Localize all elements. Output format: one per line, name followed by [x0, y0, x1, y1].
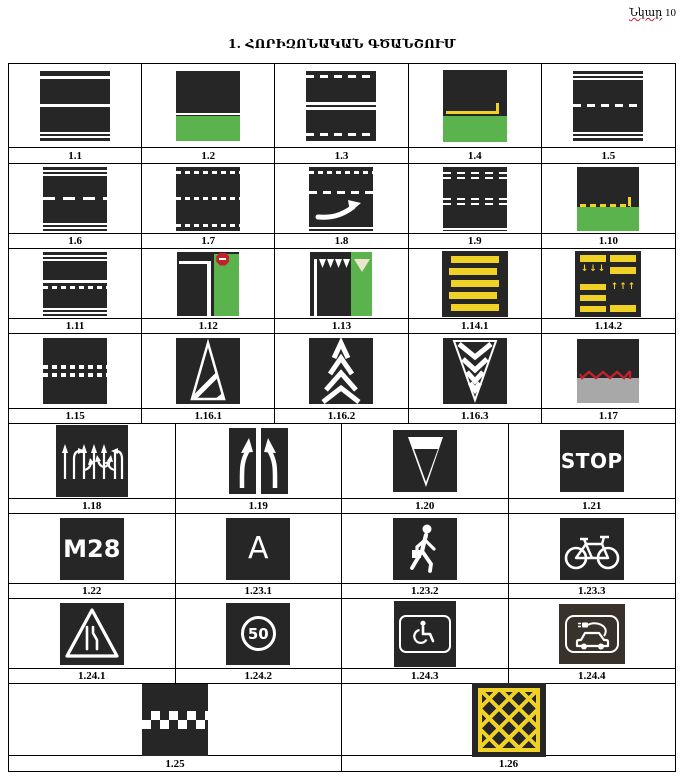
- route-number-text: M28: [63, 535, 120, 563]
- cell-1-5: [542, 64, 675, 148]
- marking-1-19-lane-end-arrows-graphic: [229, 428, 288, 494]
- marking-1-1-solid-line-graphic: [40, 71, 110, 141]
- cell-1-22: M28: [9, 514, 176, 584]
- zebra-up-arrows-icon: ↑↑↑: [610, 282, 636, 292]
- marking-1-25-speed-hump-graphic: [142, 684, 208, 756]
- road-narrows-sign-icon: [60, 603, 124, 665]
- wheelchair-icon: [412, 620, 438, 647]
- bus-lane-letter: A: [248, 531, 269, 566]
- give-way-triangle-icon: [354, 259, 370, 272]
- marking-1-16-2-chevron-merge-graphic: [309, 338, 373, 404]
- curve-left-arrow-icon: [261, 428, 288, 494]
- marking-1-13-give-way-teeth-graphic: [310, 252, 372, 316]
- cell-1-14-1: [409, 249, 542, 319]
- cell-1-16-1: [142, 334, 275, 409]
- lane-direction-arrows-icon: [59, 439, 125, 483]
- table-row-4: 1.15 1.16.1 1.16.2 1.16.3 1.17: [9, 334, 675, 424]
- marking-label-1-3: 1.3: [275, 148, 408, 164]
- cell-1-16-3: [409, 334, 542, 409]
- cell-1-4: [409, 64, 542, 148]
- cell-1-16-2: [275, 334, 408, 409]
- marking-label-1-15: 1.15: [9, 409, 142, 424]
- marking-1-14-1-zebra-graphic: [442, 251, 508, 317]
- cell-1-24-4: [509, 599, 676, 669]
- marking-1-15-cycle-crossing-graphic: [43, 338, 107, 404]
- marking-label-1-14-2: 1.14.2: [542, 319, 675, 334]
- cell-1-10: [542, 164, 675, 234]
- cell-1-14-2: ↓↓↓ ↑↑↑: [542, 249, 675, 319]
- zigzag-line-icon: [579, 370, 635, 382]
- marking-label-1-2: 1.2: [142, 148, 275, 164]
- cell-1-19: [176, 424, 343, 499]
- figure-word: Նկար: [629, 7, 662, 19]
- marking-label-1-9: 1.9: [409, 234, 542, 249]
- marking-label-1-11: 1.11: [9, 319, 142, 334]
- marking-label-1-26: 1.26: [342, 756, 675, 771]
- cell-1-20: [342, 424, 509, 499]
- marking-label-1-22: 1.22: [9, 584, 176, 599]
- marking-1-9-double-broken-graphic: [443, 167, 507, 231]
- page-title: 1. ՀՈՐԻԶՈՆԱԿԱՆ ԳԾԱՆՇՈՒՄ: [0, 36, 684, 51]
- cell-1-21: STOP: [509, 424, 676, 499]
- table-row-5: STOP 1.18 1.19 1.20 1.21: [9, 424, 675, 514]
- marking-label-1-8: 1.8: [275, 234, 408, 249]
- marking-1-11-combined-line-graphic: [43, 252, 107, 316]
- marking-1-17-zigzag-stop-graphic: [577, 339, 639, 403]
- cell-1-17: [542, 334, 675, 409]
- table-row-7: 50: [9, 599, 675, 684]
- marking-label-1-24-2: 1.24.2: [176, 669, 343, 684]
- cell-1-24-3: [342, 599, 509, 669]
- ev-charging-icon: [569, 618, 615, 650]
- marking-1-24-3-disabled-parking-graphic: [394, 601, 456, 667]
- marking-1-2-edge-line-graphic: [176, 71, 240, 141]
- cell-1-6: [9, 164, 142, 234]
- marking-1-22-route-number-graphic: M28: [60, 518, 124, 580]
- speed-limit-circle-icon: 50: [241, 616, 276, 651]
- cell-1-7: [142, 164, 275, 234]
- marking-label-1-18: 1.18: [9, 499, 176, 514]
- cell-1-11: [9, 249, 142, 319]
- document-page: { "header": { "figure_word": "Նկար", "fi…: [0, 0, 684, 782]
- figure-caption: Նկար 10: [629, 6, 676, 19]
- table-row-2: 1.6 1.7 1.8 1.9 1.10: [9, 164, 675, 249]
- marking-label-1-23-2: 1.23.2: [342, 584, 509, 599]
- marking-label-1-23-1: 1.23.1: [176, 584, 343, 599]
- marking-label-1-14-1: 1.14.1: [409, 319, 542, 334]
- table-row-8: 1.25 1.26: [9, 684, 675, 771]
- markings-table: 1.1 1.2 1.3 1.4 1.5: [8, 63, 676, 772]
- cell-1-9: [409, 164, 542, 234]
- marking-label-1-5: 1.5: [542, 148, 675, 164]
- marking-1-16-3-chevron-split-graphic: [443, 338, 507, 404]
- cell-1-24-1: [9, 599, 176, 669]
- table-row-6: M28 A: [9, 514, 675, 599]
- speed-limit-text: 50: [248, 625, 269, 643]
- marking-1-21-stop-word-graphic: STOP: [560, 430, 624, 492]
- cell-1-1: [9, 64, 142, 148]
- marking-label-1-17: 1.17: [542, 409, 675, 424]
- marking-label-1-20: 1.20: [342, 499, 509, 514]
- marking-label-1-1: 1.1: [9, 148, 142, 164]
- cell-1-24-2: 50: [176, 599, 343, 669]
- marking-label-1-7: 1.7: [142, 234, 275, 249]
- marking-1-23-2-pedestrian-graphic: [393, 518, 457, 580]
- cell-1-18: [9, 424, 176, 499]
- bicycle-icon: [560, 518, 624, 580]
- cell-1-23-3: [509, 514, 676, 584]
- marking-1-23-3-cycle-lane-graphic: [560, 518, 624, 580]
- marking-label-1-23-3: 1.23.3: [509, 584, 676, 599]
- cell-1-8: [275, 164, 408, 234]
- marking-1-24-2-speed-limit-graphic: 50: [226, 603, 290, 665]
- marking-label-1-16-1: 1.16.1: [142, 409, 275, 424]
- marking-label-1-24-1: 1.24.1: [9, 669, 176, 684]
- marking-label-1-16-2: 1.16.2: [275, 409, 408, 424]
- marking-1-26-box-junction-graphic: [472, 683, 546, 757]
- marking-1-5-broken-line-graphic: [573, 71, 643, 141]
- cell-1-15: [9, 334, 142, 409]
- marking-1-7-lane-line-graphic: [176, 167, 240, 231]
- table-row-1: 1.1 1.2 1.3 1.4 1.5: [9, 64, 675, 164]
- pedestrian-icon: [393, 518, 457, 580]
- zebra-down-arrows-icon: ↓↓↓: [580, 264, 606, 274]
- marking-1-6-approach-line-graphic: [43, 167, 107, 231]
- marking-label-1-10: 1.10: [542, 234, 675, 249]
- table-row-3: ↓↓↓ ↑↑↑ 1.11 1.12 1.13 1.14.1 1.14.2: [9, 249, 675, 334]
- cell-1-12: [142, 249, 275, 319]
- marking-1-3-double-solid-graphic: [306, 71, 376, 141]
- marking-1-24-1-warning-sign-graphic: [60, 603, 124, 665]
- marking-label-1-4: 1.4: [409, 148, 542, 164]
- marking-1-24-4-ev-charging-graphic: [559, 604, 625, 664]
- cell-1-23-1: A: [176, 514, 343, 584]
- marking-label-1-19: 1.19: [176, 499, 343, 514]
- marking-1-23-1-bus-lane-graphic: A: [226, 518, 290, 580]
- lane-change-arrow-icon: [315, 199, 367, 221]
- marking-label-1-6: 1.6: [9, 234, 142, 249]
- cell-1-26: [342, 684, 675, 756]
- marking-1-10-yellow-broken-graphic: [577, 167, 639, 231]
- marking-label-1-12: 1.12: [142, 319, 275, 334]
- yellow-crosshatch-icon: [478, 688, 540, 752]
- cell-1-25: [9, 684, 342, 756]
- cell-1-13: [275, 249, 408, 319]
- marking-label-1-13: 1.13: [275, 319, 408, 334]
- cell-1-3: [275, 64, 408, 148]
- marking-1-4-yellow-no-stop-graphic: [443, 70, 507, 142]
- marking-label-1-25: 1.25: [9, 756, 342, 771]
- marking-1-12-stop-line-graphic: [177, 252, 239, 316]
- checker-pattern: [142, 711, 208, 729]
- figure-number: 10: [665, 7, 676, 19]
- shark-teeth-icons: [319, 259, 351, 269]
- cell-1-2: [142, 64, 275, 148]
- marking-1-14-2-zebra-arrows-graphic: ↓↓↓ ↑↑↑: [575, 251, 641, 317]
- yield-triangle-icon: [393, 430, 457, 492]
- marking-1-20-give-way-triangle-graphic: [393, 430, 457, 492]
- marking-1-8-wide-broken-graphic: [309, 167, 373, 231]
- curve-right-arrow-icon: [229, 428, 256, 494]
- cell-1-23-2: [342, 514, 509, 584]
- marking-1-18-lane-arrows-graphic: [56, 425, 128, 497]
- marking-label-1-16-3: 1.16.3: [409, 409, 542, 424]
- marking-1-16-1-hatched-island-graphic: [176, 338, 240, 404]
- stop-text: STOP: [561, 449, 623, 473]
- marking-label-1-21: 1.21: [509, 499, 676, 514]
